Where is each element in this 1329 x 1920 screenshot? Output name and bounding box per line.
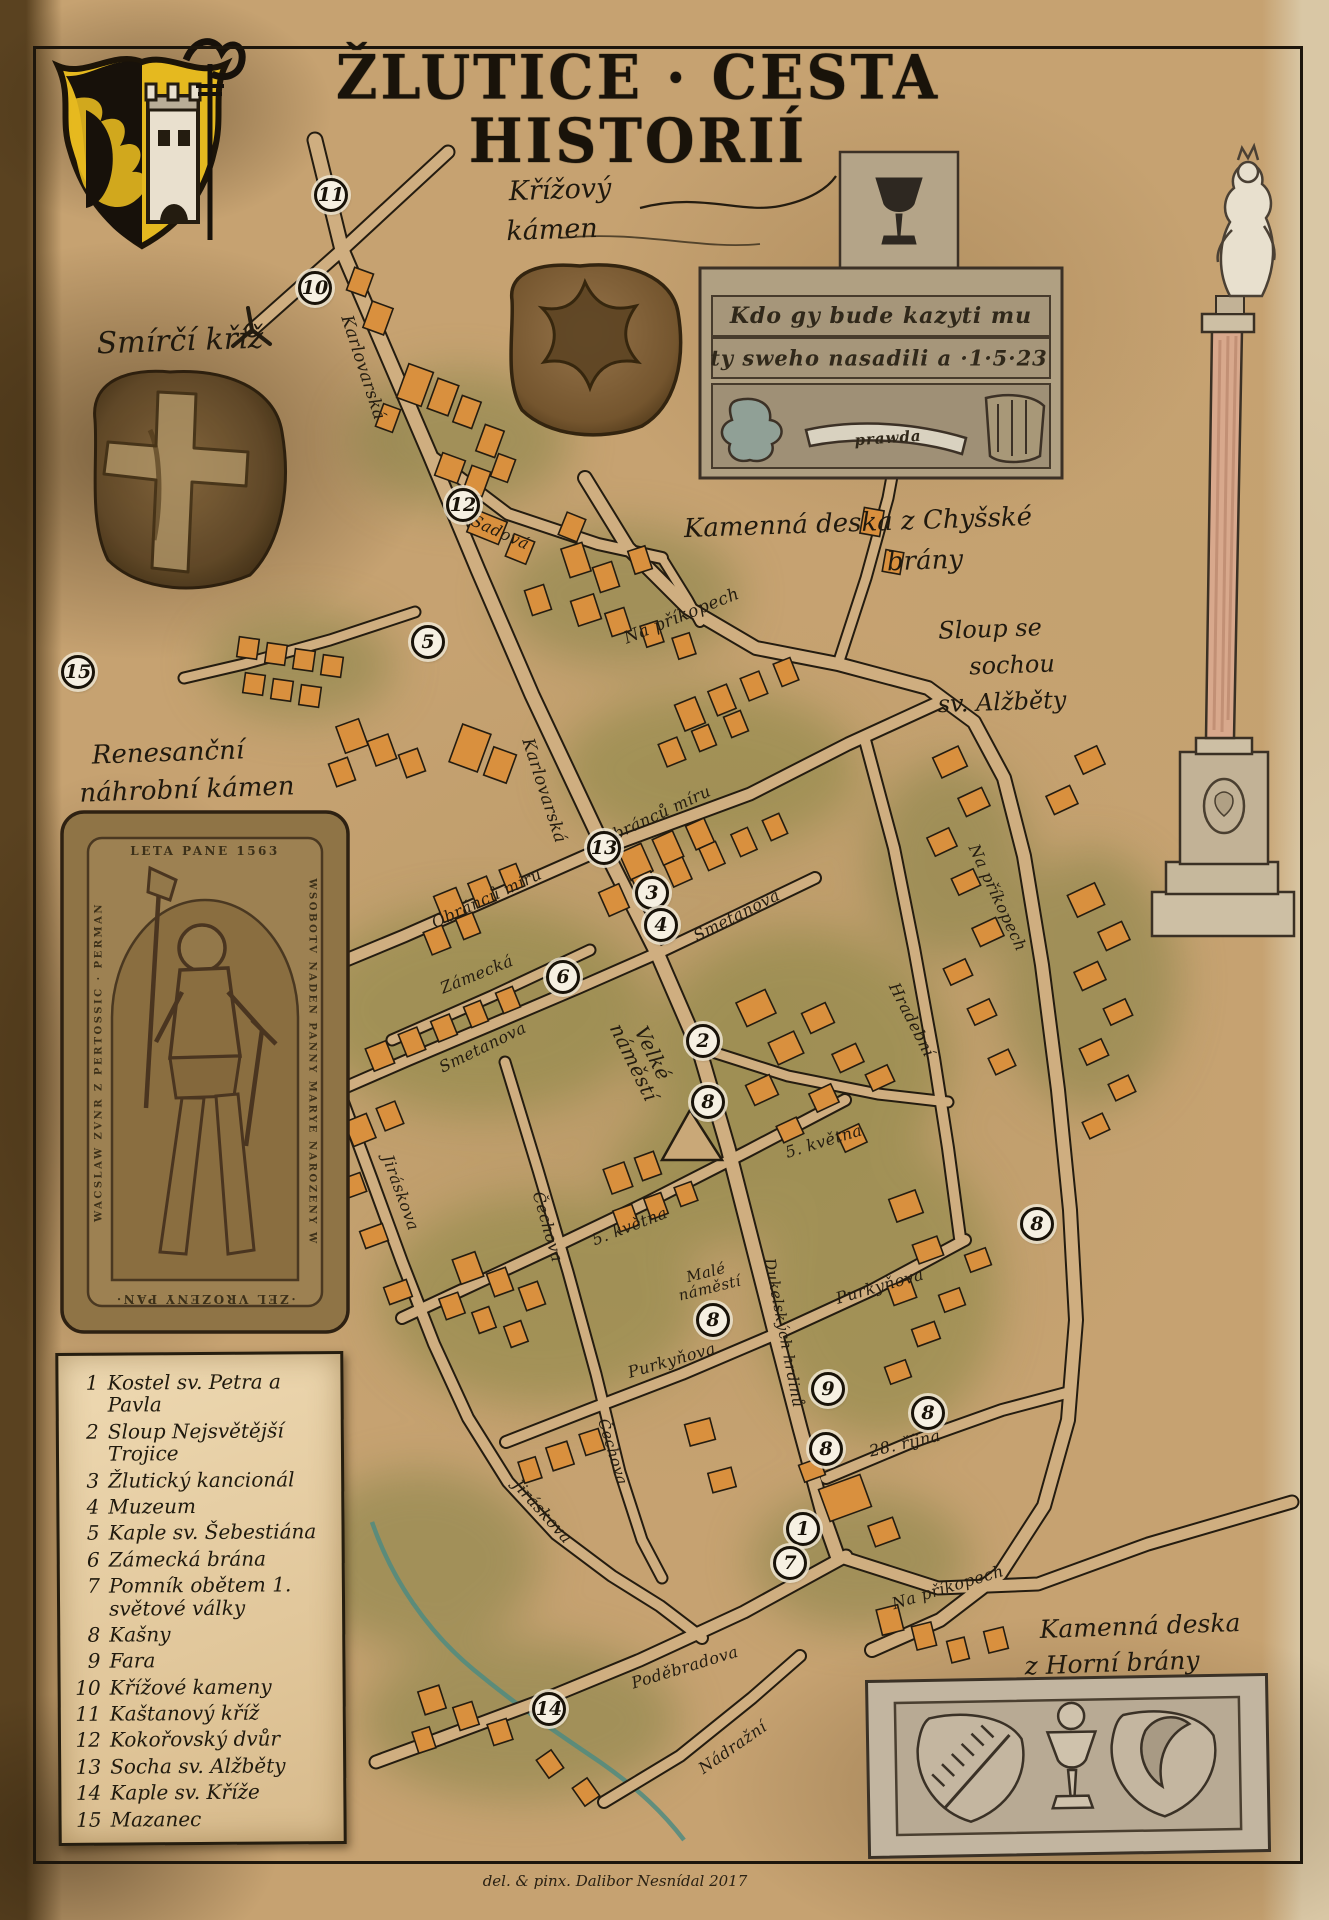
legend-item-label: Křížové kameny — [110, 1675, 335, 1699]
map-marker-8[interactable]: 8 — [1020, 1207, 1054, 1241]
caption-deska-chysske-2: brány — [886, 545, 963, 578]
street-label: Karlovarská — [337, 313, 388, 422]
legend-item-label: Sloup Nejsvětější Trojice — [108, 1419, 333, 1465]
legend-item-number: 9 — [72, 1650, 100, 1673]
caption-deska-chysske-1: Kamenná deska z Chyšské — [683, 502, 1032, 544]
legend-item-label: Kašny — [109, 1622, 334, 1646]
legend-item: 7Pomník obětem 1. světové války — [72, 1573, 334, 1620]
map-marker-11[interactable]: 11 — [314, 178, 348, 212]
caption-nahrobni-2: náhrobní kámen — [79, 771, 295, 808]
legend-item-label: Muzeum — [108, 1494, 333, 1518]
map-marker-12[interactable]: 12 — [446, 488, 480, 522]
street-label: Hradební — [885, 980, 937, 1059]
street-label: 5. května — [590, 1205, 670, 1249]
legend-item: 4Muzeum — [71, 1494, 333, 1518]
legend-item-number: 6 — [72, 1548, 100, 1571]
map-marker-1[interactable]: 1 — [786, 1512, 820, 1546]
legend-item-number: 10 — [73, 1676, 101, 1699]
street-label: 5. května — [784, 1122, 865, 1161]
map-marker-8[interactable]: 8 — [691, 1085, 725, 1119]
street-label: Purkyňova — [626, 1340, 718, 1381]
legend-item: 3Žlutický kancionál — [71, 1468, 333, 1492]
legend-item-number: 12 — [73, 1729, 101, 1752]
legend-item-label: Kokořovský dvůr — [110, 1728, 335, 1752]
street-label: 28. října — [868, 1428, 943, 1461]
street-label: Malé náměstí — [673, 1258, 742, 1304]
legend-item-number: 14 — [73, 1782, 101, 1805]
page-title: ŽLUTICE · CESTA HISTORIÍ — [238, 46, 1038, 173]
tombstone-text-right: WSOBOTV NADEN PANNY MARYE NAROZENY W — [307, 878, 318, 1245]
street-label: Purkyňova — [834, 1266, 926, 1307]
map-marker-9[interactable]: 9 — [811, 1372, 845, 1406]
street-label: Smetanova — [691, 887, 783, 945]
signature: del. & pinx. Dalibor Nesnídal 2017 — [455, 1872, 775, 1890]
street-label: Čechova — [594, 1417, 629, 1487]
legend-item: 8Kašny — [72, 1622, 334, 1646]
legend-item: 11Kaštanový kříž — [73, 1701, 335, 1725]
map-marker-8[interactable]: 8 — [911, 1396, 945, 1430]
tablet-banner-text: prawda — [854, 427, 922, 450]
caption-krizovy-kamen-1: Křížový — [508, 173, 612, 208]
caption-smirci-kriz: Smírčí kříž — [96, 321, 264, 362]
legend-item: 15Mazanec — [73, 1807, 335, 1831]
legend-item-label: Kaple sv. Kříže — [110, 1780, 335, 1804]
street-label: Nádražní — [696, 1719, 770, 1778]
caption-sloup-2: sochou — [969, 650, 1056, 681]
legend-item-label: Socha sv. Alžběty — [110, 1754, 335, 1778]
map-marker-4[interactable]: 4 — [644, 908, 678, 942]
map-marker-8[interactable]: 8 — [809, 1432, 843, 1466]
street-label: Na příkopech — [622, 586, 743, 649]
map-marker-14[interactable]: 14 — [532, 1692, 566, 1726]
legend-item: 10Křížové kameny — [73, 1675, 335, 1699]
legend-item-number: 15 — [73, 1808, 101, 1831]
legend-item: 1Kostel sv. Petra a Pavla — [70, 1370, 332, 1417]
legend-item-number: 8 — [72, 1624, 100, 1647]
legend-item-number: 4 — [71, 1496, 99, 1519]
tombstone-text-bottom: ·ZEL VROZENY PAN· — [114, 1292, 295, 1306]
legend-item-number: 2 — [71, 1420, 99, 1465]
map-overlay: ŽLUTICE · CESTA HISTORIÍ Smírčí kříž Kří… — [0, 0, 1329, 1920]
legend-item-number: 5 — [71, 1522, 99, 1545]
legend-item-number: 13 — [73, 1756, 101, 1779]
caption-nahrobni-1: Renesanční — [91, 735, 244, 770]
street-label: Čechova — [529, 1190, 565, 1265]
map-marker-10[interactable]: 10 — [298, 271, 332, 305]
map-marker-7[interactable]: 7 — [773, 1546, 807, 1580]
legend-panel: 1Kostel sv. Petra a Pavla2Sloup Nejsvětě… — [55, 1351, 346, 1846]
caption-sloup-3: sv. Alžběty — [937, 686, 1067, 718]
legend-item-number: 1 — [70, 1372, 98, 1417]
map-marker-5[interactable]: 5 — [411, 625, 445, 659]
legend-item: 12Kokořovský dvůr — [73, 1728, 335, 1752]
tablet-inscription-line1: Kdo gy bude kazyti mu — [730, 303, 1032, 329]
legend-item: 13Socha sv. Alžběty — [73, 1754, 335, 1778]
legend-item: 14Kaple sv. Kříže — [73, 1780, 335, 1804]
map-marker-2[interactable]: 2 — [686, 1024, 720, 1058]
legend-item-number: 7 — [72, 1575, 100, 1620]
street-label: Dukelských hrdinů — [761, 1257, 805, 1409]
caption-sloup-1: Sloup se — [938, 613, 1042, 645]
map-sheet: ŽLUTICE · CESTA HISTORIÍ Smírčí kříž Kří… — [0, 0, 1329, 1920]
street-label: Sadová — [468, 513, 531, 554]
street-label: Velké náměstí — [606, 1011, 680, 1105]
legend-item: 5Kaple sv. Šebestiána — [71, 1520, 333, 1544]
street-label: Na příkopech — [890, 1563, 1006, 1613]
map-marker-8[interactable]: 8 — [696, 1303, 730, 1337]
legend-item-label: Kostel sv. Petra a Pavla — [107, 1370, 332, 1416]
legend-item-number: 11 — [73, 1703, 101, 1726]
tombstone-text-left: WACSLAW ZVNR Z PERTOSSIC · PERMAN — [94, 902, 105, 1222]
map-marker-6[interactable]: 6 — [546, 960, 580, 994]
tablet-inscription-line2: ty sweho nasadili a ·1·5·23 — [710, 346, 1048, 371]
street-label: Na příkopech — [965, 842, 1029, 954]
map-marker-15[interactable]: 15 — [61, 655, 95, 689]
street-label: Karlovarská — [518, 736, 569, 845]
street-label: Obránců míru — [429, 866, 544, 932]
caption-krizovy-kamen-2: kámen — [506, 213, 598, 247]
legend-item-label: Žlutický kancionál — [108, 1468, 333, 1492]
map-marker-13[interactable]: 13 — [587, 831, 621, 865]
legend-item-label: Fara — [109, 1648, 334, 1672]
street-label: Smetanova — [437, 1020, 529, 1077]
legend-item-label: Mazanec — [110, 1807, 335, 1831]
legend-item-label: Kaple sv. Šebestiána — [108, 1520, 333, 1544]
street-label: Jiráskova — [379, 1153, 422, 1233]
legend-item-label: Pomník obětem 1. světové války — [109, 1573, 334, 1619]
caption-deska-horni-1: Kamenná deska — [1039, 1608, 1241, 1644]
map-marker-3[interactable]: 3 — [635, 876, 669, 910]
caption-deska-horni-2: z Horní brány — [1024, 1645, 1200, 1680]
legend-item: 6Zámecká brána — [72, 1547, 334, 1571]
legend-item: 9Fara — [72, 1648, 334, 1672]
legend-item-label: Zámecká brána — [109, 1547, 334, 1571]
street-label: Jiráskova — [509, 1477, 575, 1547]
tombstone-text-top: LETA PANE 1563 — [130, 844, 280, 858]
legend-item-number: 3 — [71, 1469, 99, 1492]
street-label: Zámecká — [438, 953, 516, 997]
legend-list: 1Kostel sv. Petra a Pavla2Sloup Nejsvětě… — [70, 1370, 335, 1831]
legend-item-label: Kaštanový kříž — [110, 1701, 335, 1725]
legend-item: 2Sloup Nejsvětější Trojice — [71, 1419, 333, 1466]
street-label: Poděbradova — [630, 1644, 741, 1692]
